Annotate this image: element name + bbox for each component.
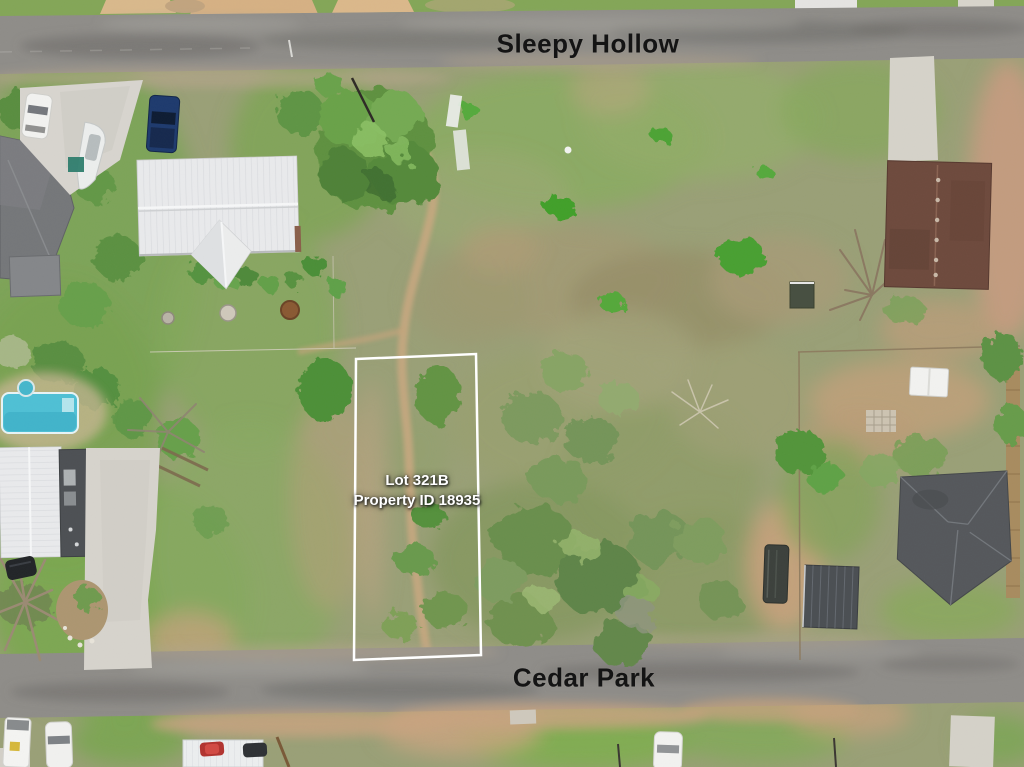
photo-grain-overlay bbox=[0, 0, 1024, 767]
aerial-property-photo: Sleepy Hollow Cedar Park Lot 321B Proper… bbox=[0, 0, 1024, 767]
lot-title: Lot 321B bbox=[354, 471, 481, 491]
lot-label: Lot 321B Property ID 18935 bbox=[354, 471, 481, 511]
street-label-cedar-park: Cedar Park bbox=[513, 663, 655, 694]
street-label-sleepy-hollow: Sleepy Hollow bbox=[497, 29, 680, 60]
aerial-photo-canvas bbox=[0, 0, 1024, 767]
lot-property-id: Property ID 18935 bbox=[354, 491, 481, 511]
